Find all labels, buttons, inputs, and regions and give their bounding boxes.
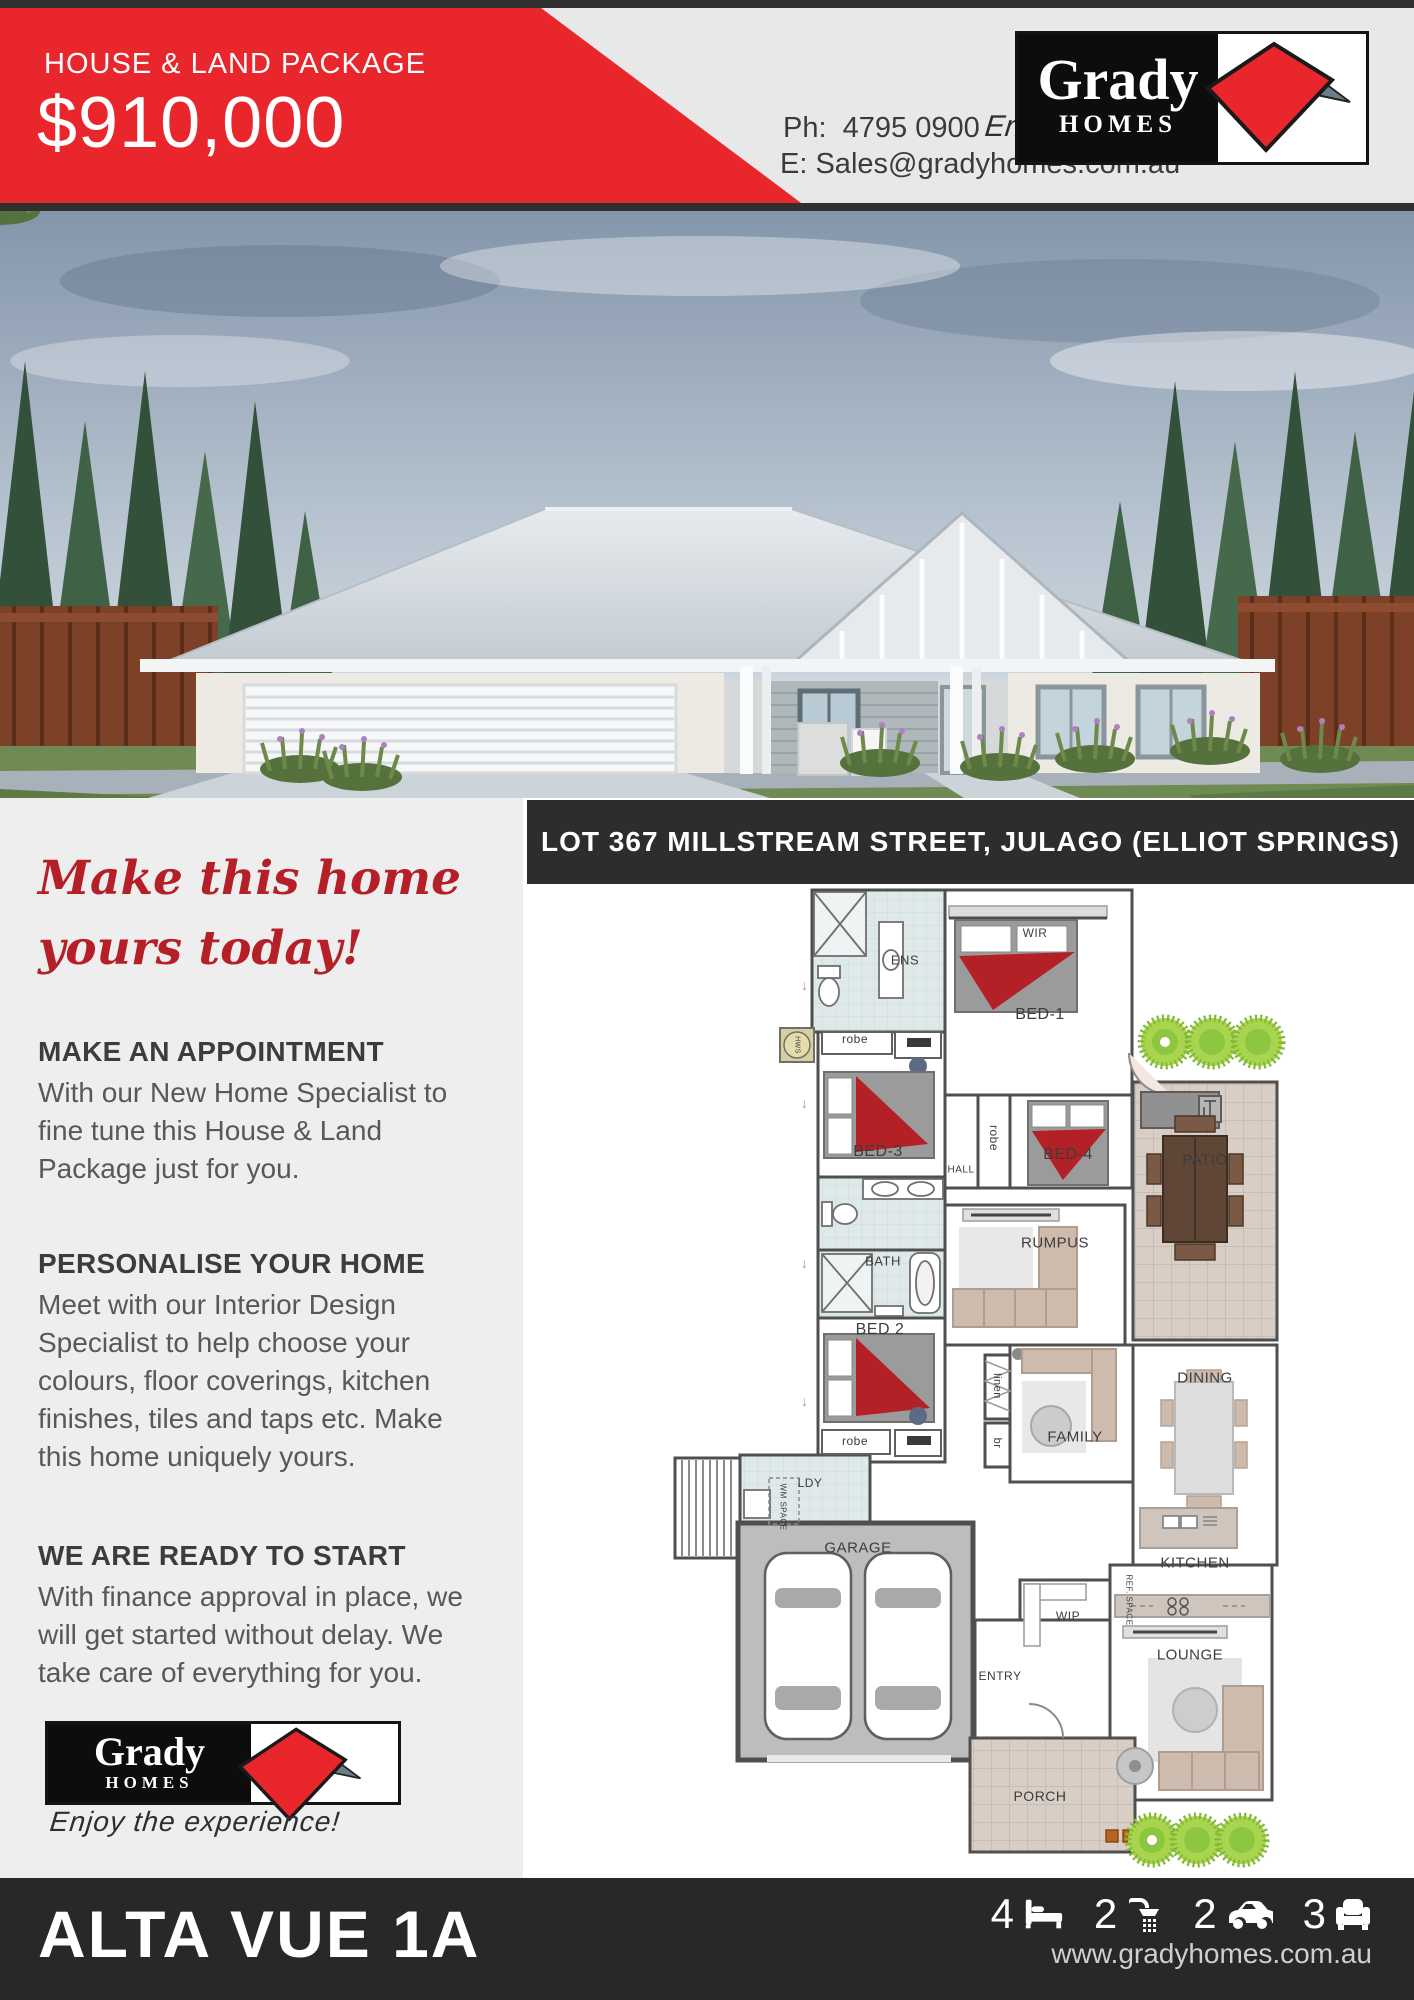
package-price: $910,000	[37, 82, 345, 164]
package-eyebrow: HOUSE & LAND PACKAGE	[44, 48, 426, 81]
roof-icon	[1200, 40, 1350, 170]
plan-panel: LOT 367 MILLSTREAM STREET, JULAGO (ELLIO…	[523, 798, 1414, 1878]
website-link[interactable]: www.gradyhomes.com.au	[0, 1938, 1372, 1970]
stat-bathrooms: 2	[1094, 1890, 1163, 1938]
headline: Make this home yours today!	[38, 844, 523, 984]
section-ready-to-start: WE ARE READY TO START With finance appro…	[38, 1540, 490, 1692]
logo-sub: HOMES	[1018, 112, 1218, 138]
flyer-page: HOUSE & LAND PACKAGE $910,000 Ph: 4795 0…	[0, 0, 1414, 2000]
bed-icon	[1022, 1897, 1064, 1931]
sofa-icon	[1334, 1897, 1372, 1931]
garage-count: 2	[1193, 1890, 1216, 1938]
section-body: With finance approval in place, we will …	[38, 1578, 490, 1692]
svg-text:↓: ↓	[801, 1255, 808, 1271]
floor-plan-drawing: ↓↓↓↓	[523, 886, 1414, 1876]
headline-line-2: yours today!	[38, 914, 523, 984]
house-photo	[0, 211, 1414, 798]
stat-bedrooms: 4	[991, 1890, 1064, 1938]
car-icon	[1225, 1898, 1273, 1930]
footer-bar: ALTA VUE 1A 4 2	[0, 1878, 1414, 2000]
stat-living: 3	[1303, 1890, 1372, 1938]
living-count: 3	[1303, 1890, 1326, 1938]
section-heading: PERSONALISE YOUR HOME	[38, 1248, 490, 1280]
bathrooms-count: 2	[1094, 1890, 1117, 1938]
logo-emblem	[1218, 34, 1360, 162]
section-body: With our New Home Specialist to fine tun…	[38, 1074, 490, 1188]
section-make-appointment: MAKE AN APPOINTMENT With our New Home Sp…	[38, 1036, 490, 1188]
grady-homes-logo-footer: Grady HOMES	[45, 1721, 401, 1805]
headline-line-1: Make this home	[38, 844, 523, 914]
logo-wordmark: Grady HOMES	[1018, 34, 1218, 162]
svg-text:↓: ↓	[801, 1393, 808, 1409]
phone-number: 4795 0900	[843, 112, 980, 144]
section-heading: WE ARE READY TO START	[38, 1540, 490, 1572]
left-column: Make this home yours today! MAKE AN APPO…	[0, 798, 523, 1878]
stats-row: 4 2 2	[0, 1890, 1372, 1938]
svg-text:↓: ↓	[801, 1095, 808, 1111]
logo-sub: HOMES	[48, 1774, 251, 1792]
logo-emblem	[251, 1724, 383, 1802]
section-heading: MAKE AN APPOINTMENT	[38, 1036, 490, 1068]
header-divider	[0, 203, 1414, 211]
header: HOUSE & LAND PACKAGE $910,000 Ph: 4795 0…	[0, 8, 1414, 203]
logo-name: Grady	[48, 1730, 251, 1774]
email-label: E:	[780, 148, 807, 180]
stat-garage: 2	[1193, 1890, 1272, 1938]
top-bar	[0, 0, 1414, 8]
section-body: Meet with our Interior Design Specialist…	[38, 1286, 490, 1476]
floor-plan: ↓↓↓↓ ENSWIRBED-1robeBED-3HALLrobeBED-4PA…	[523, 886, 1414, 1876]
section-personalise: PERSONALISE YOUR HOME Meet with our Inte…	[38, 1248, 490, 1476]
shower-icon	[1125, 1896, 1163, 1932]
address-banner: LOT 367 MILLSTREAM STREET, JULAGO (ELLIO…	[527, 800, 1414, 884]
brand-tagline: Enjoy the experience!	[48, 1806, 342, 1838]
logo-name: Grady	[1018, 48, 1218, 112]
bedrooms-count: 4	[991, 1890, 1014, 1938]
fence-right	[1238, 596, 1414, 761]
logo-wordmark: Grady HOMES	[48, 1724, 251, 1802]
phone-label: Ph:	[783, 112, 827, 144]
svg-text:↓: ↓	[801, 977, 808, 993]
grady-homes-logo: Grady HOMES	[1015, 31, 1369, 165]
phone-line[interactable]: Ph: 4795 0900	[783, 112, 980, 145]
